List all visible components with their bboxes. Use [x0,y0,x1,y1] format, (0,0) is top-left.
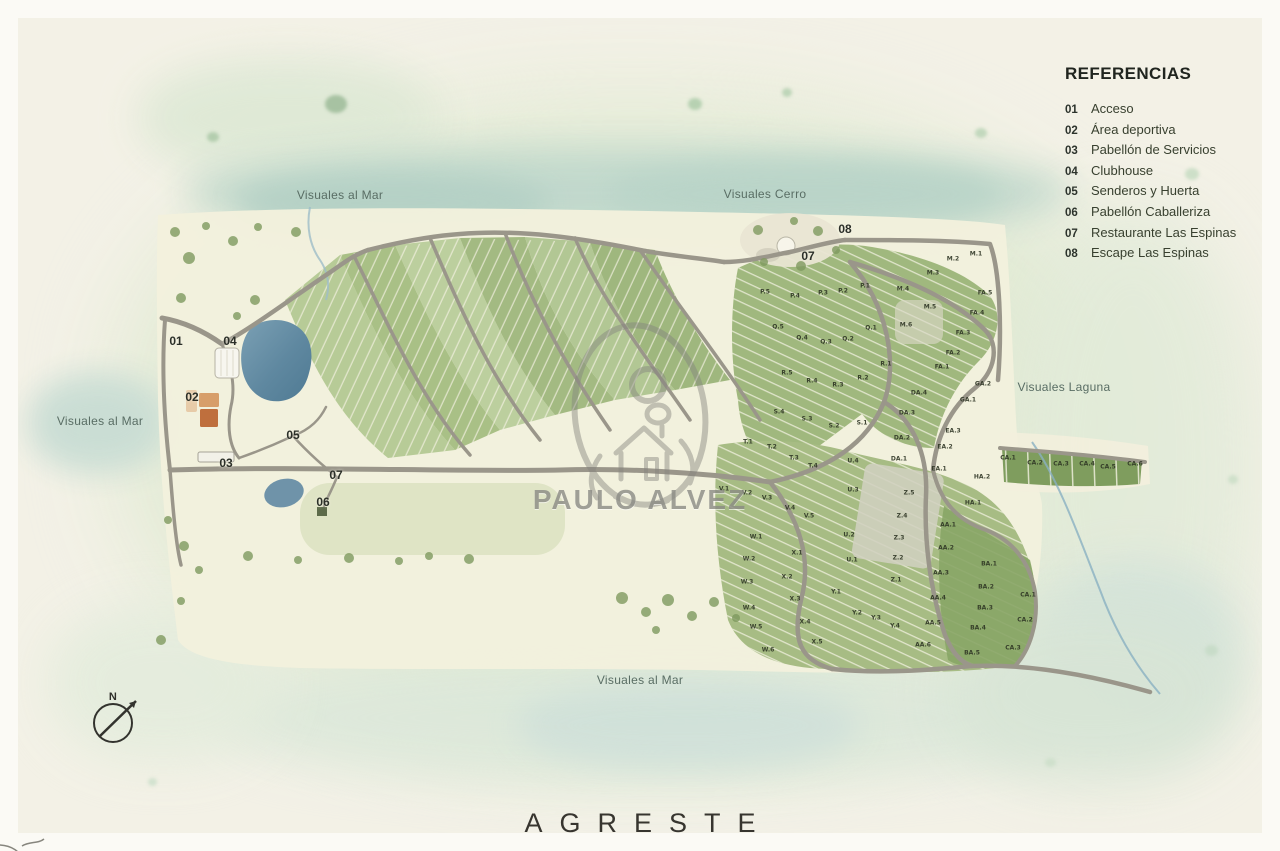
legend-item-label: Clubhouse [1091,163,1153,178]
legend-item: 03Pabellón de Servicios [1065,142,1255,157]
legend-item: 04Clubhouse [1065,163,1255,178]
legend-item-number: 06 [1065,207,1091,219]
legend-item: 07Restaurante Las Espinas [1065,225,1255,240]
legend-item-label: Pabellón de Servicios [1091,142,1216,157]
legend-item-label: Restaurante Las Espinas [1091,225,1236,240]
legend-item: 08Escape Las Espinas [1065,245,1255,260]
legend-item-number: 07 [1065,228,1091,240]
legend-item-number: 03 [1065,145,1091,157]
legend-item: 05Senderos y Huerta [1065,183,1255,198]
legend-item-number: 08 [1065,248,1091,260]
legend-item-number: 04 [1065,166,1091,178]
legend-item-number: 05 [1065,186,1091,198]
legend-item-label: Pabellón Caballeriza [1091,204,1210,219]
compass-n-label: N [109,691,117,703]
legend: REFERENCIAS 01Acceso02Área deportiva03Pa… [1065,64,1255,266]
legend-title: REFERENCIAS [1065,64,1255,84]
legend-item: 02Área deportiva [1065,122,1255,137]
brand-title: AGRESTE [507,808,772,839]
legend-item-label: Escape Las Espinas [1091,245,1209,260]
legend-list: 01Acceso02Área deportiva03Pabellón de Se… [1065,101,1255,260]
legend-item-label: Senderos y Huerta [1091,183,1199,198]
legend-item: 06Pabellón Caballeriza [1065,204,1255,219]
legend-item-number: 01 [1065,104,1091,116]
legend-item-label: Área deportiva [1091,122,1176,137]
legend-item-number: 02 [1065,125,1091,137]
legend-item: 01Acceso [1065,101,1255,116]
legend-item-label: Acceso [1091,101,1134,116]
